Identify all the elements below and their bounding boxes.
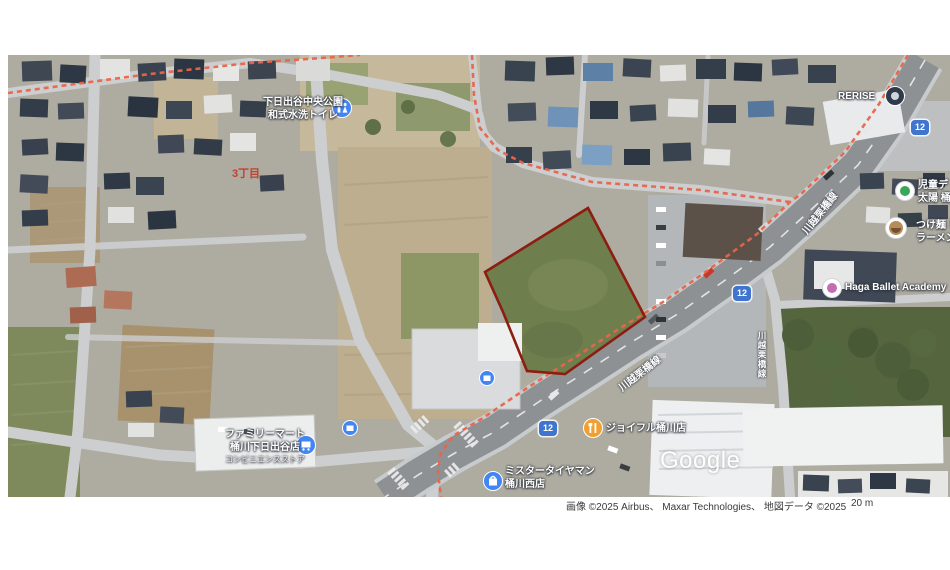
warehouse-building	[743, 405, 944, 466]
attribution-text: 画像 ©2025 Airbus、 Maxar Technologies、 地図デ…	[566, 498, 846, 513]
restaurant-icon[interactable]	[583, 418, 603, 438]
daycare-label[interactable]: 児童デ 太陽 桶	[918, 180, 950, 205]
satellite-base	[8, 55, 950, 497]
store-icon-small-1[interactable]	[342, 420, 358, 436]
familymart-label[interactable]: ファミリーマート 桶川下日出谷店 コンビニエンスストア	[225, 429, 305, 467]
roadside-restaurant-building	[683, 203, 764, 261]
ballet-academy-icon[interactable]	[822, 278, 842, 298]
route-12-shield-top: 12	[911, 120, 929, 135]
ramen-shop-icon[interactable]	[885, 217, 905, 237]
park-label[interactable]: 下日出谷中央公園 和式水洗トイレ	[263, 97, 343, 122]
ballet-label[interactable]: Haga Ballet Academy	[845, 282, 946, 295]
scale-label: 20 m	[851, 498, 873, 509]
district-label: 3丁目	[232, 165, 260, 181]
road-label-kawagoe-vertical: 川越栗橋線	[756, 331, 768, 379]
map-viewport[interactable]: 12 12 12 下日出谷中央公園 和式水洗トイレ 3丁目 RERISE 川越栗…	[8, 55, 950, 497]
store-icon-small-2[interactable]	[479, 370, 495, 386]
tireman-label[interactable]: ミスタータイヤマン 桶川西店	[505, 466, 595, 491]
google-watermark: Google	[660, 447, 740, 475]
rerise-label[interactable]: RERISE	[838, 91, 875, 104]
ramen-label[interactable]: つけ麺 し ラーメン	[916, 220, 950, 245]
route-12-shield-bottom: 12	[539, 421, 557, 436]
joyfull-label[interactable]: ジョイフル桶川店	[606, 423, 686, 436]
daycare-icon[interactable]	[895, 181, 915, 201]
scanned-map-page: 12 12 12 下日出谷中央公園 和式水洗トイレ 3丁目 RERISE 川越栗…	[0, 0, 950, 570]
route-12-shield-middle: 12	[733, 286, 751, 301]
rerise-icon[interactable]	[885, 86, 905, 106]
tire-shop-store-icon[interactable]	[483, 471, 503, 491]
